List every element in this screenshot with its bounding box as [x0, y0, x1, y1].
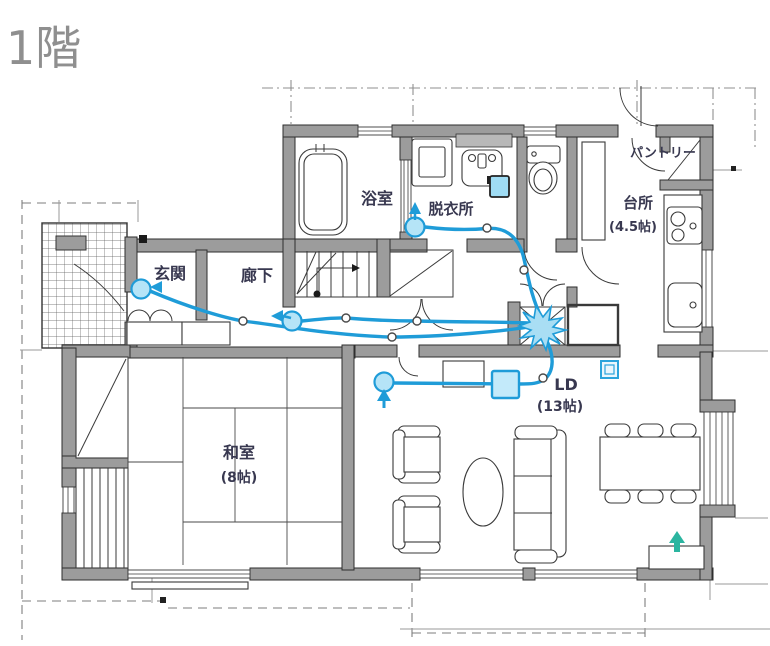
entrance-porch	[42, 223, 127, 348]
bath-window	[358, 127, 392, 135]
label-daidokoro-size: (4.5帖)	[609, 219, 657, 235]
label-genkan: 玄関	[154, 264, 186, 283]
stair-direction-arrow	[352, 264, 360, 272]
kitchen-window	[701, 250, 712, 327]
ld-south-window-right	[535, 570, 637, 578]
label-washitsu-size: (8帖)	[221, 469, 258, 486]
washitsu-south-window	[128, 570, 250, 578]
bay-window	[704, 412, 733, 505]
kitchen-door-swing	[582, 247, 619, 284]
label-washitsu: 和室	[223, 443, 255, 462]
stove	[667, 207, 702, 244]
label-rouka: 廊下	[241, 266, 273, 285]
tatami-lines	[128, 357, 342, 568]
wall-controller-icon	[487, 176, 509, 197]
floor-title: 1階	[6, 21, 81, 75]
dining-set	[600, 424, 700, 503]
outlet-genkan-icon	[132, 280, 151, 299]
label-ld-size: (13帖)	[537, 398, 583, 415]
toilet-window	[524, 127, 556, 135]
label-pantry: パントリー	[630, 146, 696, 161]
kitchen-storage-box	[568, 305, 618, 345]
washing-machine-pan	[412, 139, 452, 186]
outlet-datsuijo-icon	[406, 218, 425, 237]
bathtub	[299, 144, 347, 235]
label-daidokoro: 台所	[623, 194, 653, 212]
toilet	[527, 146, 560, 194]
shoe-cabinets	[127, 322, 230, 345]
kitchen-sink	[668, 283, 702, 327]
washroom-shelf	[456, 134, 512, 147]
floor-plan-page: 玄関 廊下 浴室 脱衣所 台所 (4.5帖) パントリー 和室 (8帖) LD …	[0, 0, 770, 646]
floor-plan-canvas: 玄関 廊下 浴室 脱衣所 台所 (4.5帖) パントリー 和室 (8帖) LD …	[0, 0, 770, 646]
shoe-cabinet-door-left	[128, 310, 150, 321]
label-ld: LD	[554, 375, 577, 394]
router-icon	[492, 371, 519, 398]
sofa	[514, 426, 566, 563]
shoe-cabinet-door-right	[150, 310, 172, 321]
label-yokushitsu: 浴室	[361, 189, 393, 208]
hub-closet-door-right	[543, 284, 565, 306]
ld-south-window-left	[420, 570, 523, 578]
kitchen-cupboard	[582, 142, 605, 240]
label-datsuijo: 脱衣所	[428, 200, 473, 218]
backdoor-swing	[620, 88, 658, 126]
left-arrow-icon	[271, 310, 283, 322]
wall-outlet-icon	[601, 361, 618, 378]
ld-door-swing	[399, 357, 418, 376]
stair-start-dot	[314, 291, 321, 298]
outlet-rouka-icon	[283, 312, 302, 331]
coffee-table	[463, 458, 503, 526]
armchair	[393, 496, 440, 553]
armchair	[393, 426, 440, 483]
outside-deck-step	[132, 582, 248, 589]
understair-closet-door-right	[422, 299, 453, 330]
furniture	[393, 361, 704, 569]
outlet-ld-icon	[375, 373, 394, 392]
washitsu-west-window	[63, 487, 74, 513]
